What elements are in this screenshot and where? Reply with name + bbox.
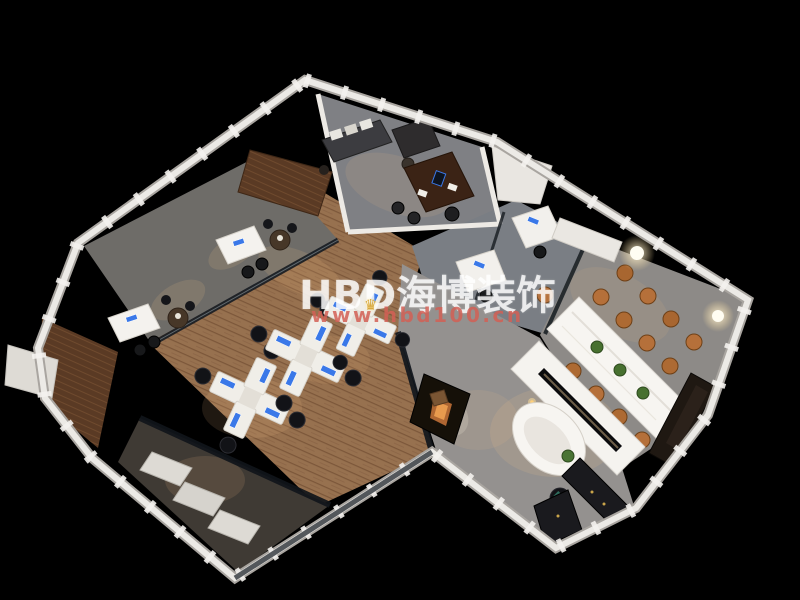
conference-chair (686, 334, 702, 350)
task-chair (263, 219, 273, 229)
conference-chair (593, 289, 609, 305)
task-chair (148, 336, 160, 348)
floorplan-graphic (0, 0, 800, 600)
task-chair (256, 258, 268, 270)
sofa-button (557, 515, 560, 518)
guest-chair (408, 212, 420, 224)
desk-chair (445, 207, 459, 221)
task-chair (161, 295, 171, 305)
conference-chair (616, 312, 632, 328)
side-table (319, 165, 329, 175)
plant (614, 364, 626, 376)
task-chair (480, 290, 492, 302)
task-chair (134, 344, 146, 356)
pendant-light (630, 246, 644, 260)
pendant-light (712, 310, 724, 322)
plant (591, 341, 603, 353)
sofa-button (591, 491, 594, 494)
task-chair (242, 266, 254, 278)
guest-chair (392, 202, 404, 214)
task-chair (185, 301, 195, 311)
conference-chair (640, 288, 656, 304)
office-3d-render: HBD海博装饰 www.hbd100.cn ♛ (0, 0, 800, 600)
table-flowers (277, 235, 283, 241)
sofa-button (603, 503, 606, 506)
task-chair (534, 246, 546, 258)
plant (637, 387, 649, 399)
conference-chair (662, 358, 678, 374)
conference-chair (537, 287, 553, 303)
conference-chair (639, 335, 655, 351)
reception-plant (562, 450, 574, 462)
table-flowers (175, 313, 181, 319)
task-chair (287, 223, 297, 233)
conference-chair (663, 311, 679, 327)
